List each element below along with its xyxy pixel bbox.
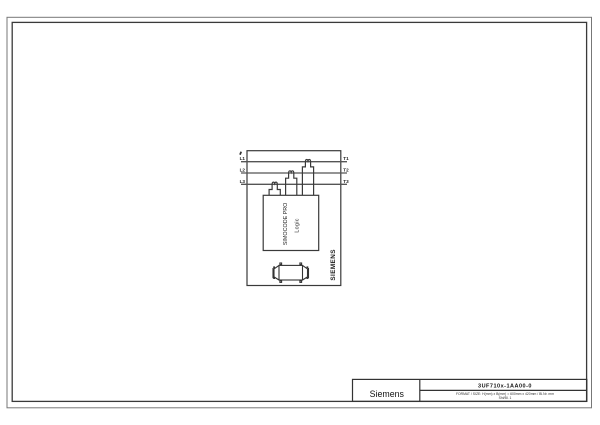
svg-text:L2: L2 <box>240 168 246 173</box>
svg-text:Sht/Bl. 1: Sht/Bl. 1 <box>499 396 512 400</box>
svg-text:T3: T3 <box>343 179 349 184</box>
svg-text:Siemens: Siemens <box>370 389 405 399</box>
svg-text:SIEMENS: SIEMENS <box>330 249 337 281</box>
svg-text:Logic: Logic <box>295 218 301 232</box>
svg-text:L1: L1 <box>240 156 246 161</box>
svg-text:T2: T2 <box>343 168 349 173</box>
svg-text:L3: L3 <box>240 179 246 184</box>
svg-text:SIMOCODE PRO: SIMOCODE PRO <box>283 203 289 246</box>
svg-text:3UF710x-1AA00-0: 3UF710x-1AA00-0 <box>478 383 532 389</box>
svg-text:T1: T1 <box>343 156 349 161</box>
